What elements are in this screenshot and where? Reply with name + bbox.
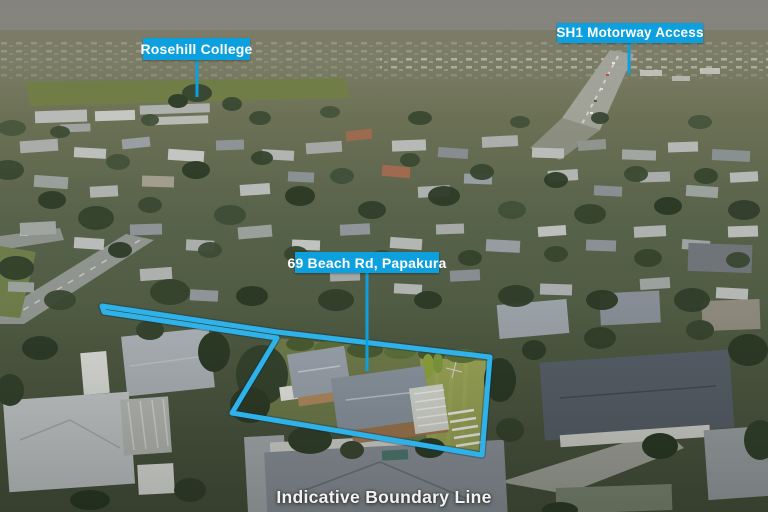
- boundary-outline-shadow: [102, 306, 490, 455]
- indicative-boundary-caption: Indicative Boundary Line: [0, 487, 768, 508]
- label-rosehill-college: Rosehill College: [143, 38, 250, 60]
- label-sh1-motorway-access: SH1 Motorway Access: [557, 23, 703, 43]
- boundary-outline: [102, 306, 490, 455]
- aerial-property-photo: Rosehill College SH1 Motorway Access 69 …: [0, 0, 768, 512]
- label-property-address: 69 Beach Rd, Papakura: [295, 252, 439, 273]
